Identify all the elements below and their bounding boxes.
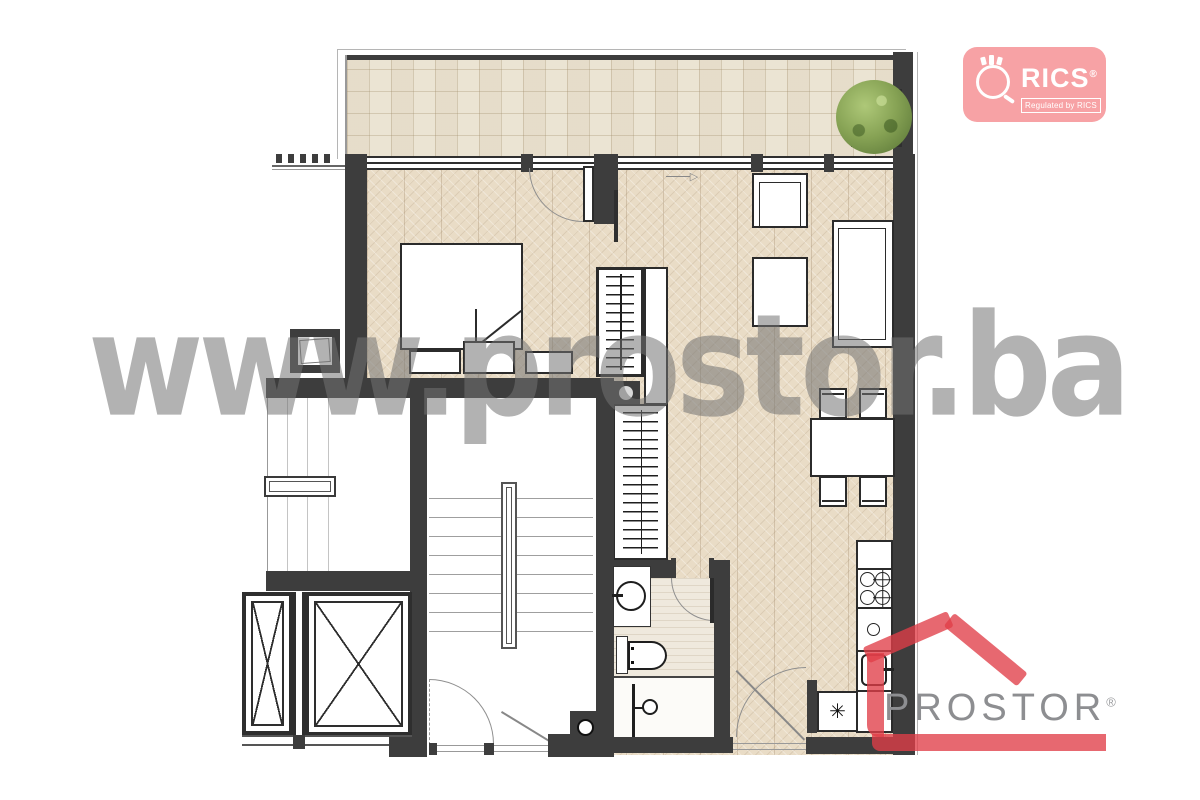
tv-panel — [614, 190, 618, 242]
shower-floor — [614, 677, 714, 737]
prostor-brand-text: PROSTOR® — [884, 689, 1116, 727]
kitchen-counter — [856, 540, 893, 733]
pergola-railing-line1 — [272, 165, 347, 167]
elevator-bottom-block-2 — [389, 737, 412, 757]
armchair-seat — [759, 182, 801, 226]
watermark: www.prostor.ba — [88, 296, 1126, 437]
terrace-outer-line-top — [337, 49, 906, 50]
terrace-floor — [347, 60, 893, 158]
counter-divider-4 — [858, 690, 891, 692]
bathroom-door-leaf — [710, 578, 714, 623]
terrace-left-edge — [345, 55, 347, 158]
elevator-x-icon — [314, 601, 403, 727]
terrace-tree — [836, 80, 912, 154]
toilet-bowl — [628, 641, 667, 670]
counter-knob — [867, 623, 880, 636]
prostor-roof-right-icon — [944, 613, 1028, 687]
toilet-dot-2 — [631, 661, 634, 664]
dining-chair-4 — [859, 476, 887, 507]
stove-burner-2 — [875, 572, 890, 587]
corner-column-foot — [548, 734, 574, 757]
sink-faucet — [883, 668, 894, 671]
stove-burner-4 — [875, 590, 890, 605]
armchair — [752, 173, 808, 228]
counter-divider-3 — [858, 650, 891, 652]
window-mullion-2 — [751, 154, 763, 172]
lobby-door-leaf-dashed — [429, 679, 431, 745]
elevator-x-icon — [251, 601, 284, 726]
lobby-door-post-2 — [484, 743, 494, 755]
lobby-door-post-1 — [429, 743, 437, 755]
shower-head — [642, 699, 658, 715]
corridor-window-bar — [264, 476, 336, 497]
elevator-bottom-block-1 — [293, 735, 305, 749]
toilet-dot-1 — [631, 647, 634, 650]
elevator-bottom-line2 — [242, 744, 412, 746]
rics-tagline: Regulated by RICS — [1021, 98, 1101, 113]
entry-direction-arrow-line — [666, 176, 690, 177]
bathroom-right-wall — [714, 560, 730, 753]
toilet-cistern — [616, 636, 628, 674]
elevator-shaft-main — [305, 592, 412, 736]
boiler-symbol-icon: ✳ — [829, 699, 846, 724]
rics-brand-text: RICS® — [1021, 63, 1098, 94]
entry-arrow-icon: ▷ — [688, 170, 700, 182]
pergola-railing-icon — [276, 154, 334, 163]
stairblock-mid-wall — [266, 571, 412, 591]
bottom-wall-left-of-entrance — [596, 737, 733, 753]
rics-logo-badge: RICS® Regulated by RICS — [963, 47, 1106, 122]
elevator-separator-wall — [293, 592, 305, 735]
elevator-bottom-line1 — [242, 735, 412, 737]
bedroom-door-leaf — [583, 166, 594, 222]
entrance-threshold-line1 — [733, 743, 806, 744]
floor-plan-canvas: ▷ ✳ — [0, 0, 1200, 800]
stair-handrail — [501, 482, 517, 649]
terrace-outer-line-left — [337, 49, 338, 159]
entrance-threshold-line2 — [733, 749, 806, 750]
kitchen-wall-stub — [807, 680, 817, 733]
counter-divider-1 — [858, 568, 891, 570]
pergola-railing-line2 — [272, 169, 347, 170]
dining-chair-3 — [819, 476, 847, 507]
washbasin-tap — [612, 594, 623, 597]
shower-divider-line — [614, 676, 714, 678]
bottom-wall-right-of-entrance — [806, 737, 895, 754]
counter-divider-2 — [858, 607, 891, 609]
shower-glass-bar — [632, 684, 635, 737]
apartment-right-wall — [893, 154, 915, 755]
elevator-shaft-left — [242, 592, 293, 735]
corner-pipe-circle — [577, 719, 594, 736]
bathroom-door-jamb-1 — [671, 558, 676, 578]
terrace-top-wall — [345, 55, 905, 60]
boiler-unit: ✳ — [817, 691, 858, 732]
facade-window-band — [367, 156, 893, 170]
window-mullion-3 — [824, 154, 834, 172]
